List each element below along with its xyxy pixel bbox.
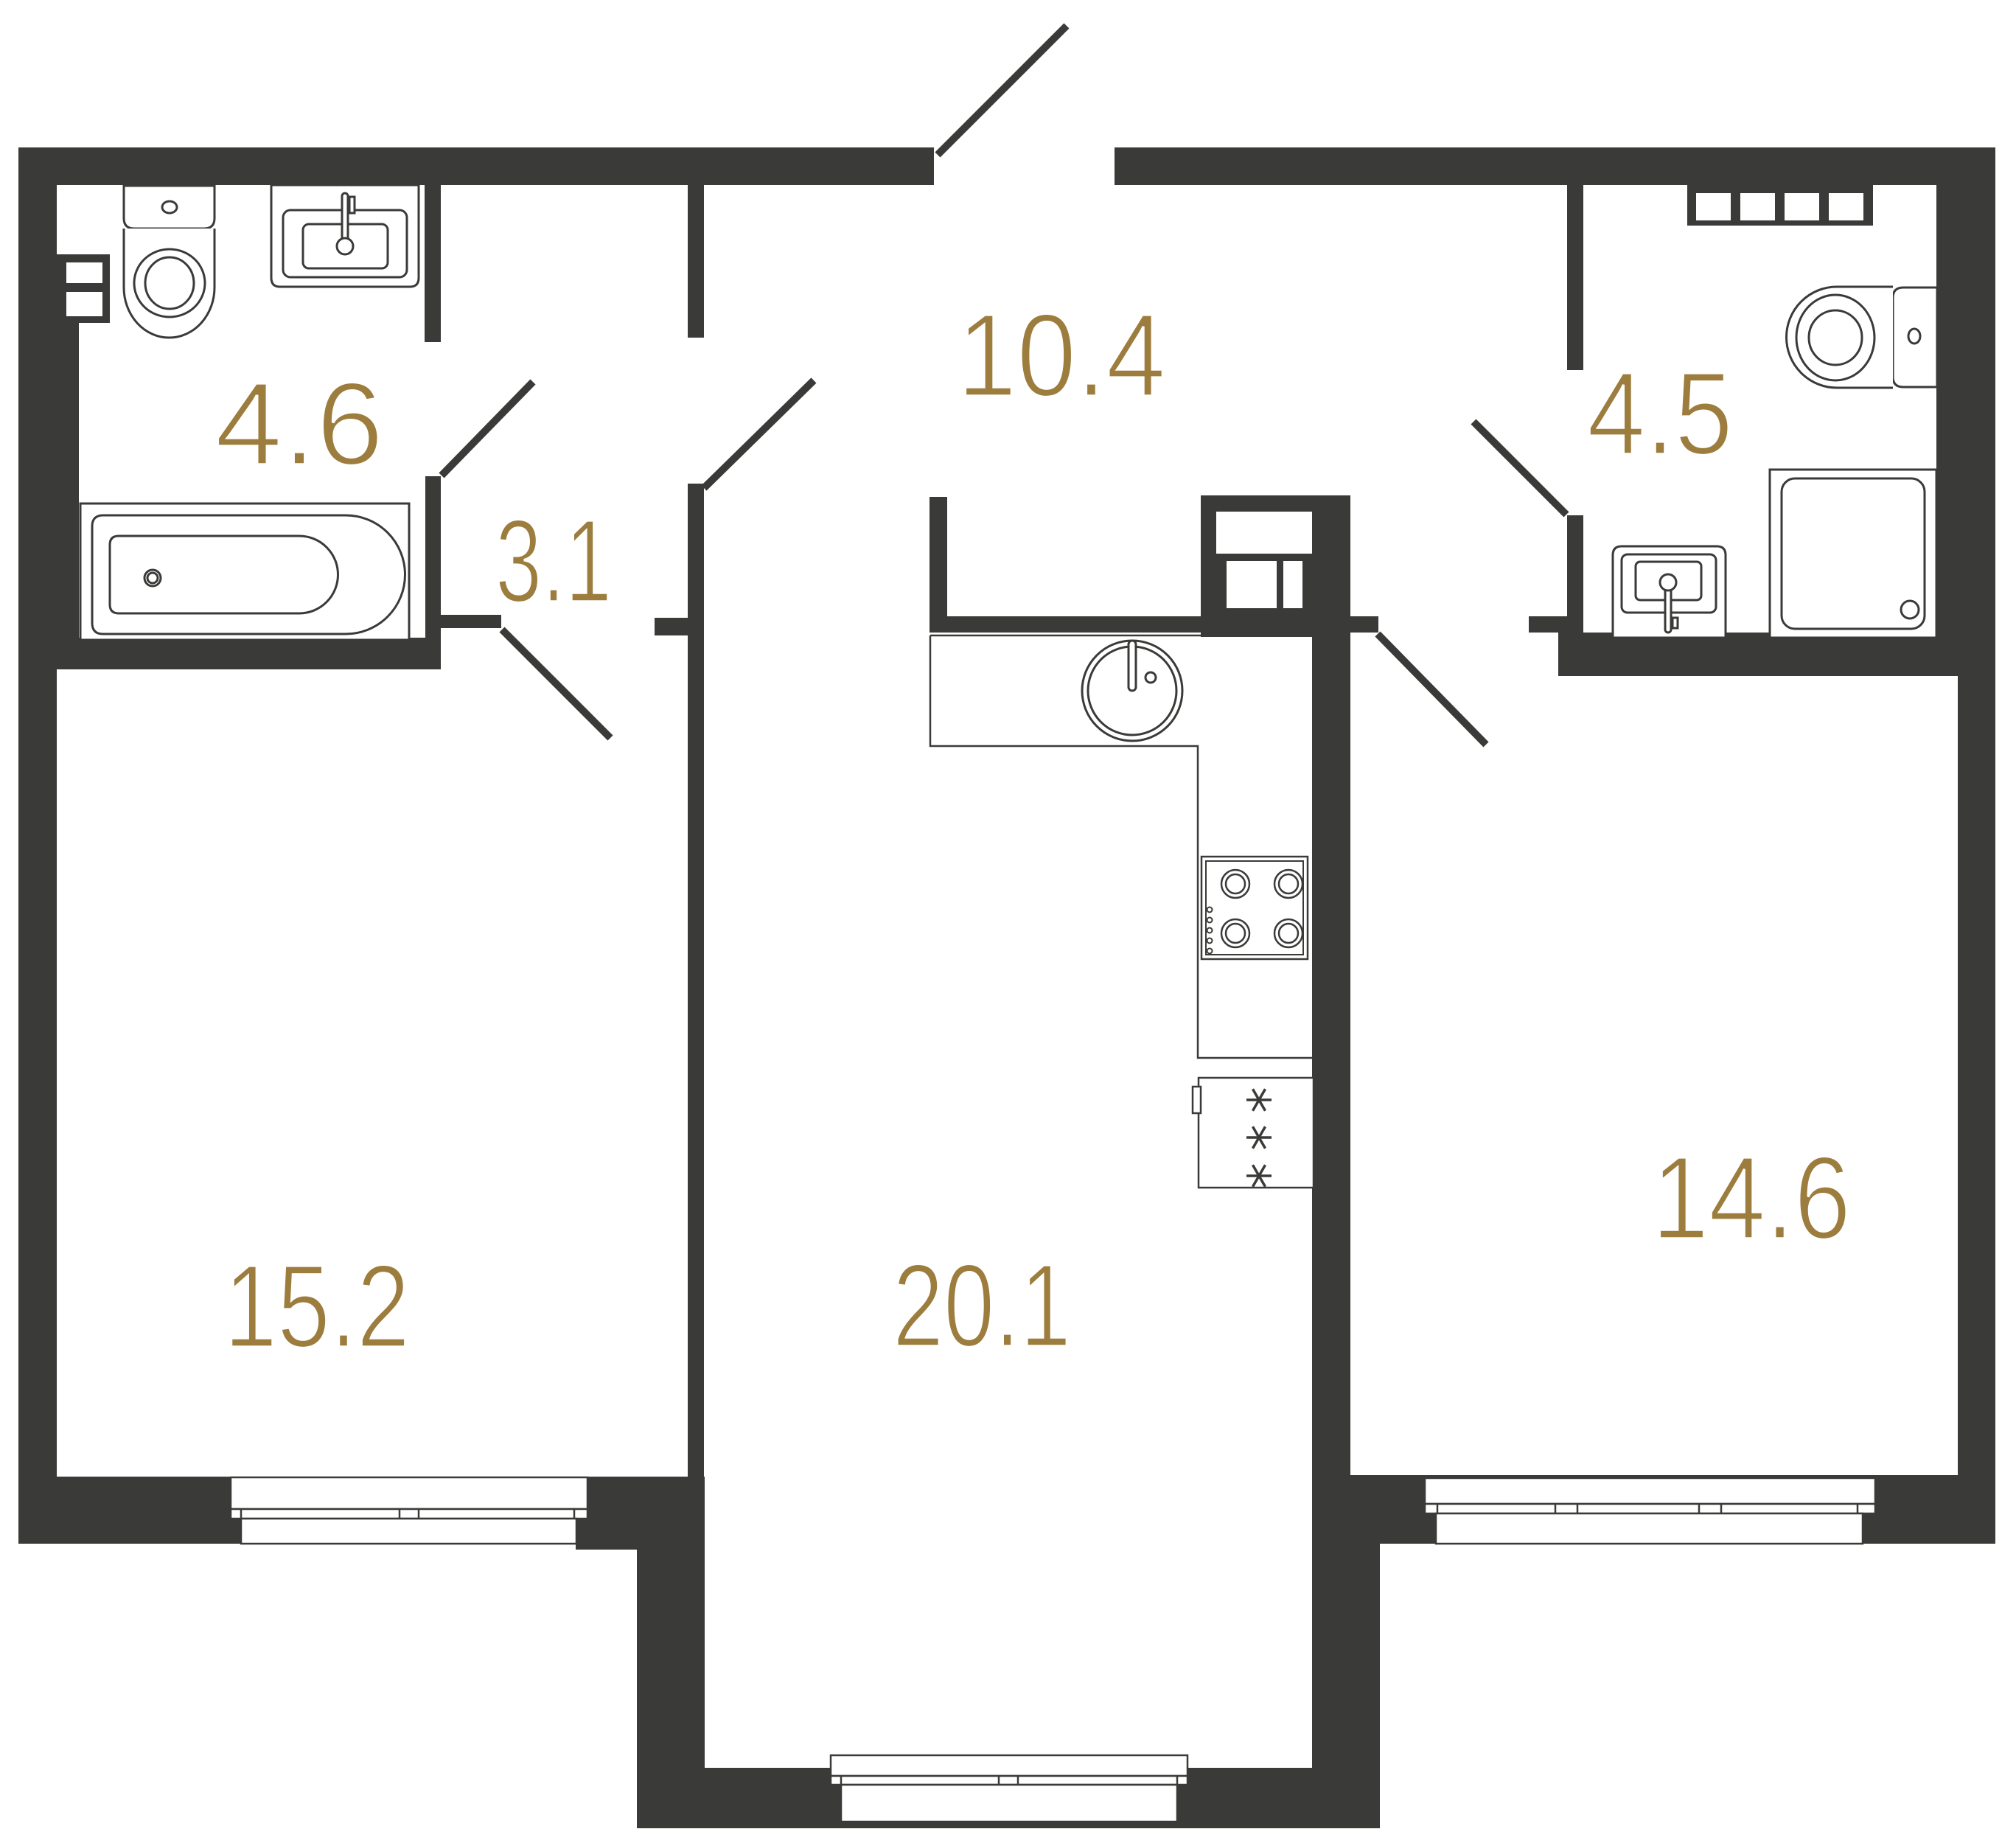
svg-text:4.6: 4.6 — [215, 358, 384, 490]
svg-text:14.6: 14.6 — [1652, 1132, 1851, 1264]
svg-text:4.5: 4.5 — [1587, 347, 1733, 479]
svg-text:15.2: 15.2 — [224, 1240, 410, 1372]
svg-text:20.1: 20.1 — [893, 1239, 1071, 1371]
svg-text:10.4: 10.4 — [958, 289, 1166, 421]
svg-text:3.1: 3.1 — [495, 495, 612, 627]
